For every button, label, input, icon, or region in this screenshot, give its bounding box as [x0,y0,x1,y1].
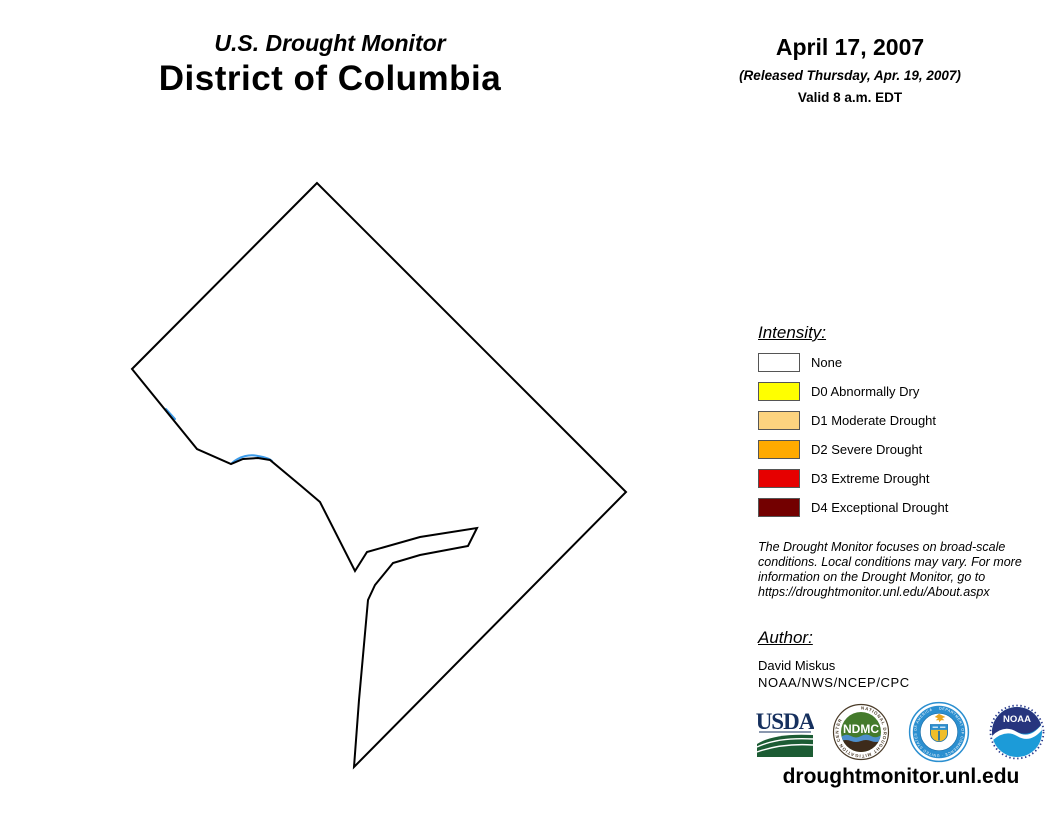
legend-item-d1: D1 Moderate Drought [758,411,948,430]
usda-wordmark: USDA [756,709,814,734]
date-block: April 17, 2007 (Released Thursday, Apr. … [690,33,1010,106]
noaa-wordmark: NOAA [1003,714,1031,725]
legend-label-none: None [811,355,842,370]
legend-label-d1: D1 Moderate Drought [811,413,936,428]
potomac-river-line [166,409,272,463]
legend-swatch-d3 [758,469,800,488]
ndmc-logo: NATIONAL DROUGHT MITIGATION CENTER NDMC [832,703,890,761]
author-block: Author: David Miskus NOAA/NWS/NCEP/CPC [758,627,910,692]
legend-label-d3: D3 Extreme Drought [811,471,930,486]
author-org: NOAA/NWS/NCEP/CPC [758,674,910,692]
dc-boundary [132,183,626,767]
usda-logo: USDA [756,706,814,758]
page-title: District of Columbia [95,59,565,99]
legend-swatch-d0 [758,382,800,401]
map-date: April 17, 2007 [690,33,1010,61]
legend-swatch-none [758,353,800,372]
legend-item-d3: D3 Extreme Drought [758,469,948,488]
legend-item-none: None [758,353,948,372]
noaa-logo: NOAA [988,703,1046,761]
ndmc-wordmark: NDMC [843,722,879,736]
legend-item-d2: D2 Severe Drought [758,440,948,459]
legend-item-d4: D4 Exceptional Drought [758,498,948,517]
legend-swatch-d2 [758,440,800,459]
legend: Intensity: None D0 Abnormally Dry D1 Mod… [758,321,948,527]
release-date: (Released Thursday, Apr. 19, 2007) [690,68,1010,84]
author-title: Author: [758,627,910,649]
legend-swatch-d1 [758,411,800,430]
website-url: droughtmonitor.unl.edu [756,765,1046,789]
report-supertitle: U.S. Drought Monitor [95,30,565,56]
legend-rows: None D0 Abnormally Dry D1 Moderate Droug… [758,353,948,517]
legend-label-d2: D2 Severe Drought [811,442,922,457]
author-name: David Miskus [758,657,910,674]
legend-item-d0: D0 Abnormally Dry [758,382,948,401]
logo-row: USDA NATIONAL DROUGHT MITIGATION CENTER … [756,700,1046,764]
disclaimer-text: The Drought Monitor focuses on broad-sca… [758,540,1044,600]
commerce-seal-logo: DEPARTMENT OF COMMERCE · UNITED STATES O… [908,701,970,763]
valid-time: Valid 8 a.m. EDT [690,90,1010,106]
legend-label-d0: D0 Abnormally Dry [811,384,919,399]
legend-label-d4: D4 Exceptional Drought [811,500,948,515]
legend-title: Intensity: [758,321,948,345]
legend-swatch-d4 [758,498,800,517]
title-block: U.S. Drought Monitor District of Columbi… [95,30,565,99]
